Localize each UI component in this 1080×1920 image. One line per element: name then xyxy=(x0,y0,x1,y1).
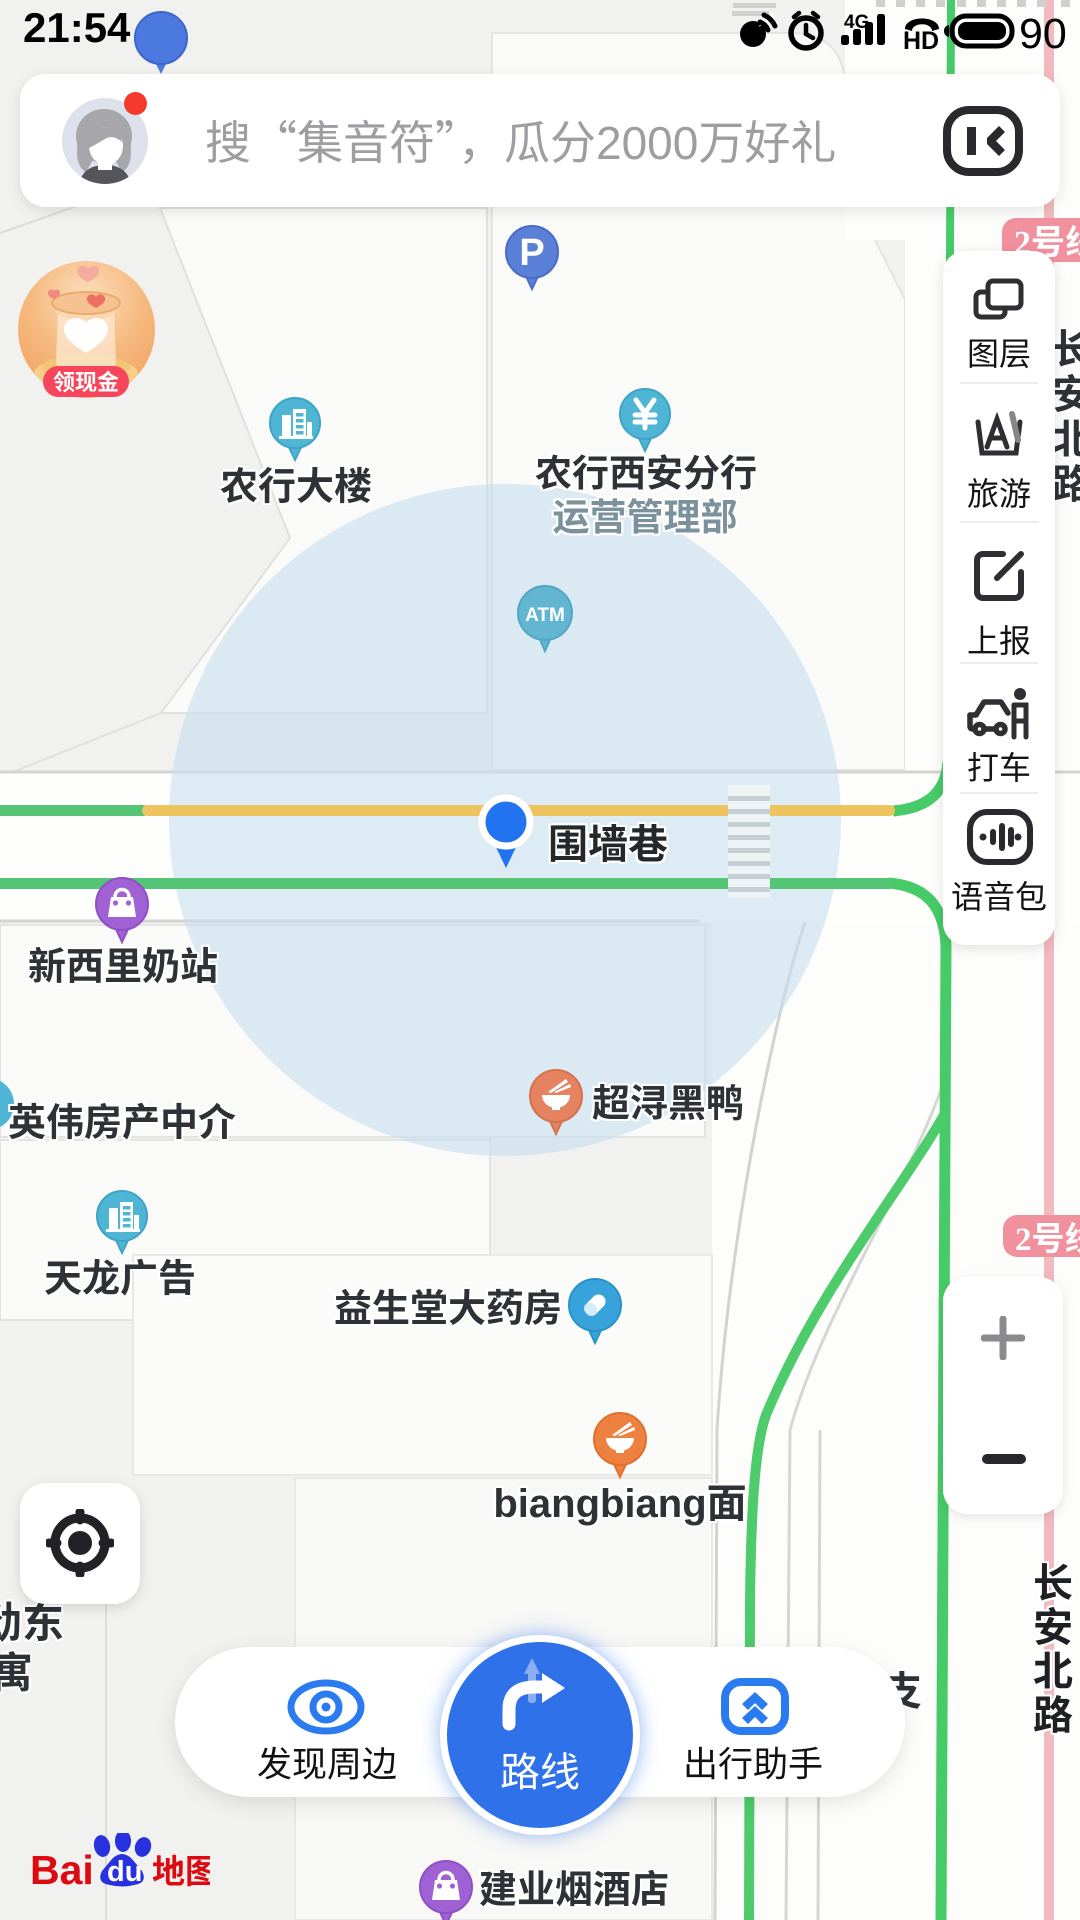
svg-text:du: du xyxy=(107,1856,142,1888)
svg-text:地图: 地图 xyxy=(152,1845,210,1893)
svg-text:ATM: ATM xyxy=(525,605,565,626)
svg-text:P: P xyxy=(519,232,544,274)
svg-text:HD: HD xyxy=(903,27,939,54)
svg-text:Bai: Bai xyxy=(30,1847,94,1893)
svg-text:90: 90 xyxy=(1019,10,1067,54)
